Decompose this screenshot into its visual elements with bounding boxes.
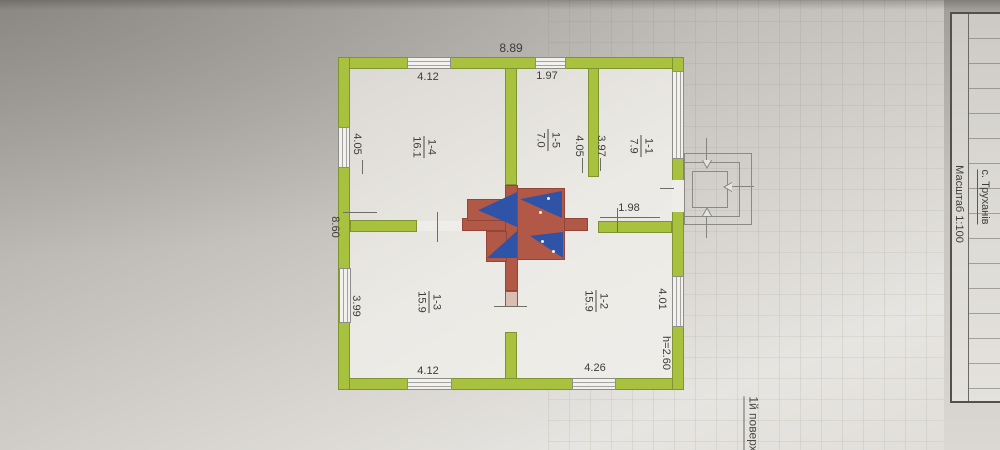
room-1-1-number: 1-1: [641, 135, 655, 157]
dim-room14-depth: 4.05: [351, 133, 363, 154]
room-1-3-number: 1-3: [429, 291, 443, 313]
dim-tick-room15: [582, 158, 583, 173]
room-label-1-5: 1-5 7.0: [535, 129, 562, 151]
dim-room11-depth: 3.97: [595, 135, 607, 156]
window-left-room14: [338, 127, 350, 168]
partition-13-12-lower: [505, 332, 517, 379]
dim-tick-room14-depth: [362, 160, 363, 174]
window-bottom-room12: [572, 378, 616, 390]
dim-room12-depth: 4.01: [656, 288, 668, 309]
title-block-scale-label: Масштаб 1:100: [953, 165, 965, 243]
room-label-1-2: 1-2 15.9: [583, 290, 610, 312]
dim-hall-width: 1.98: [618, 202, 639, 214]
window-top-room15: [535, 57, 566, 69]
wall-bottom: [338, 378, 684, 390]
room-1-3-area: 15.9: [416, 291, 429, 313]
window-right-room11: [672, 71, 684, 159]
entry-door-opening: [672, 180, 684, 212]
room-1-4-number: 1-4: [424, 136, 438, 158]
entry-arrow-left-icon-inner: [725, 183, 732, 191]
floor-plan: 8.89 4.12 1.97 1.98 4.12 4.26 4.05 8.60 …: [0, 0, 1000, 450]
dim-overall-width: 8.89: [499, 41, 522, 55]
door-opening-left-partition: [417, 221, 462, 231]
dim-room15-depth: 4.05: [573, 135, 585, 156]
dim-line-hall: [600, 217, 660, 218]
dim-tick-left-wall: [343, 212, 377, 213]
dim-room13-depth: 3.99: [350, 295, 362, 316]
dim-room12-width: 4.26: [584, 362, 605, 374]
room-1-2-area: 15.9: [583, 290, 596, 312]
dim-tick-room11: [600, 158, 601, 171]
title-block-settlement-label: с. Труханів: [977, 169, 991, 224]
entry-arrow-up-line: [706, 216, 707, 238]
room-1-1-area: 7.9: [628, 135, 641, 157]
stove-dot-1: [547, 197, 550, 200]
room-label-1-3: 1-3 15.9: [416, 291, 443, 313]
room-label-1-1: 1-1 7.9: [628, 135, 655, 157]
dim-overall-depth: 8.60: [329, 216, 341, 237]
room-1-4-area: 16.1: [411, 136, 424, 158]
entry-arrow-left-line: [732, 186, 754, 187]
dim-tick-stove-bottom: [494, 306, 527, 307]
window-right-room12: [672, 276, 684, 327]
stove-dot-4: [552, 250, 555, 253]
dim-room15-width: 1.97: [536, 70, 557, 82]
room-1-2-number: 1-2: [596, 290, 610, 312]
scanned-floor-plan-photo: 8.89 4.12 1.97 1.98 4.12 4.26 4.05 8.60 …: [0, 0, 1000, 450]
entry-arrow-down-icon-inner: [703, 160, 711, 167]
dim-tick-door-left: [437, 212, 438, 242]
partition-left-horizontal: [350, 220, 417, 232]
entry-arrow-down-line: [706, 138, 707, 160]
stove-dot-3: [541, 240, 544, 243]
door-threshold-line: [660, 188, 674, 189]
room-1-5-area: 7.0: [535, 129, 548, 151]
partition-15-11: [588, 68, 599, 177]
partition-right-horizontal: [598, 221, 672, 233]
partition-14-15: [505, 68, 517, 185]
dim-room13-width: 4.12: [417, 365, 438, 377]
room-1-5-number: 1-5: [548, 129, 562, 151]
floor-level-label: 1й поверх: [744, 396, 761, 450]
dim-room14-width: 4.12: [417, 71, 438, 83]
window-bottom-room13: [407, 378, 452, 390]
room-label-1-4: 1-4 16.1: [411, 136, 438, 158]
entry-arrow-up-icon-inner: [703, 209, 711, 216]
window-top-room14: [407, 57, 451, 69]
stove-flue-tip: [505, 291, 518, 307]
dim-ceiling-height: h=2.60: [660, 336, 672, 370]
stove-dot-2: [539, 211, 542, 214]
